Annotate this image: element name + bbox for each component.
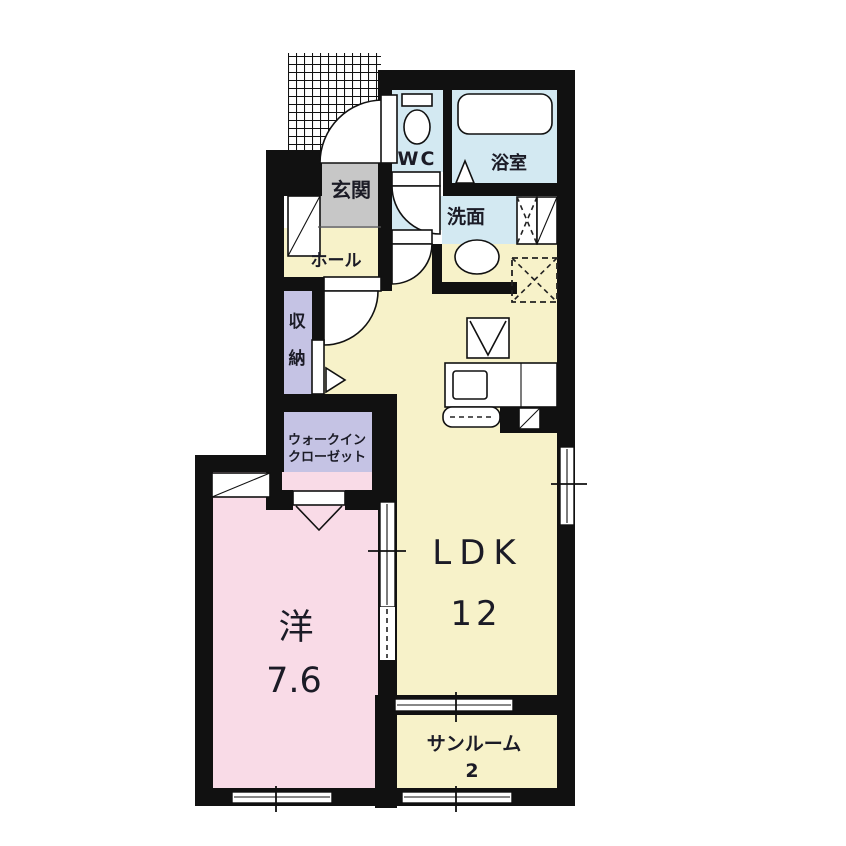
floor-plan-canvas: 玄関 ホール WC 浴室 洗面 収 納 ウォークイン クローゼット LDK 12… [0,0,846,846]
wall-storage-top [282,277,324,291]
sunroom-size-label: 2 [465,760,478,782]
storage-door-frame [312,340,324,394]
hall-label: ホール [311,251,362,271]
wc-label: WC [398,148,437,170]
wic-label-line2: クローゼット [288,449,366,465]
washroom-label: 洗面 [447,205,485,228]
western-label: 洋 [278,608,313,648]
stove-triangle-icon [467,318,509,358]
room-storage-floor [282,290,312,394]
washbasin-oval-icon [455,240,499,274]
western-size-label: 7.6 [266,661,322,701]
sunroom-label: サンルーム [427,733,521,755]
wall-left-lower [195,455,213,806]
toilet-bowl-icon [404,110,430,144]
entrance-door-leaf [381,95,397,163]
bathtub-icon [458,94,552,134]
wall-top [383,70,575,90]
bath-label: 浴室 [491,152,527,174]
wall-washbasin-stub [432,244,442,294]
floor-plan-page: 玄関 ホール WC 浴室 洗面 収 納 ウォークイン クローゼット LDK 12… [0,0,846,846]
ldk-size-label: 12 [450,594,501,634]
wic-label-line1: ウォークイン [288,433,366,448]
wall-bath-bottom [443,183,575,196]
toilet-tank-icon [402,94,432,106]
washroom-door-frame [392,230,432,244]
partition-open-strip [380,607,395,660]
hall-door-frame [324,277,381,291]
wic-door-frame [293,491,345,505]
kitchen-sink-icon [453,371,487,399]
storage-label-char2: 納 [289,348,306,369]
wall-washbasin-bottom [442,282,517,294]
wall-storage-right [312,291,324,340]
wc-door-frame [392,172,440,186]
wall-genkan-left [284,150,322,196]
wall-wc-bath-divider [443,90,452,183]
laundry-dashed-icon [517,197,537,244]
genkan-label: 玄関 [331,178,371,202]
storage-label-char1: 収 [289,312,307,332]
wall-left-mid [266,150,284,472]
ldk-label: LDK [432,533,523,573]
